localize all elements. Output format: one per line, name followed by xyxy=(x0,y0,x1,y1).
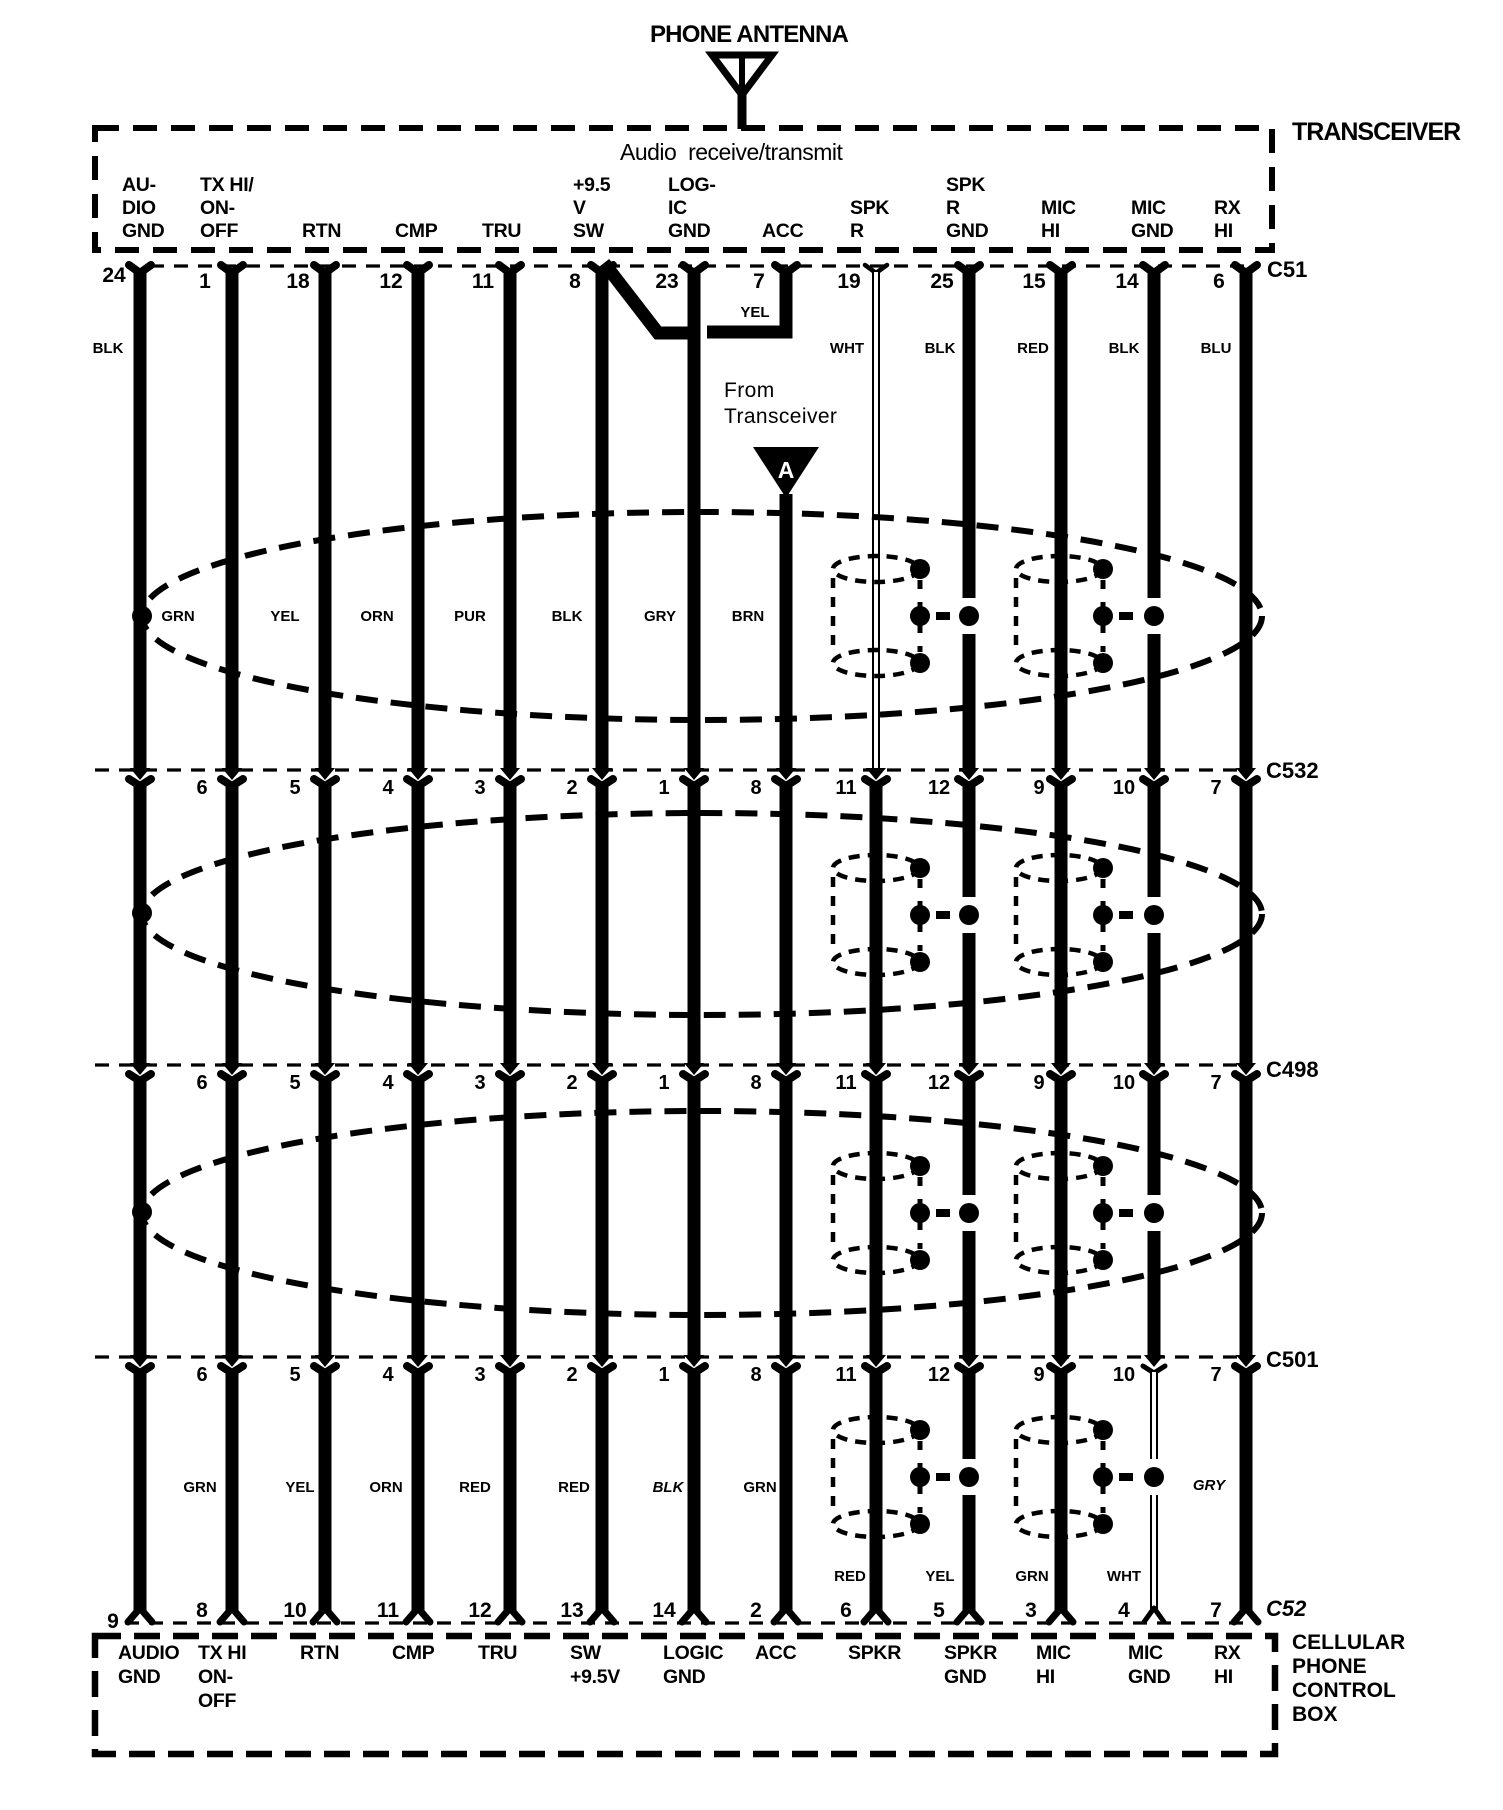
svg-text:WHT: WHT xyxy=(1107,1568,1141,1585)
svg-text:SPKR: SPKR xyxy=(944,1642,997,1664)
svg-text:From: From xyxy=(724,379,775,402)
svg-text:BLK: BLK xyxy=(93,340,124,357)
svg-text:CONTROL: CONTROL xyxy=(1292,1679,1396,1702)
svg-text:10: 10 xyxy=(1113,777,1135,799)
svg-text:1: 1 xyxy=(658,1072,669,1094)
svg-text:7: 7 xyxy=(1210,777,1221,799)
svg-text:7: 7 xyxy=(1210,1072,1221,1094)
svg-text:12: 12 xyxy=(928,777,950,799)
svg-text:10: 10 xyxy=(1113,1072,1135,1094)
svg-text:GRN: GRN xyxy=(1015,1568,1048,1585)
svg-text:4: 4 xyxy=(382,1364,394,1386)
svg-text:5: 5 xyxy=(289,1072,300,1094)
svg-text:11: 11 xyxy=(835,777,856,799)
svg-text:7: 7 xyxy=(753,270,765,293)
svg-text:14: 14 xyxy=(652,1599,676,1622)
svg-text:9: 9 xyxy=(1033,1072,1044,1094)
svg-text:ACC: ACC xyxy=(762,220,804,242)
svg-text:14: 14 xyxy=(1115,270,1139,293)
svg-text:10: 10 xyxy=(283,1599,306,1622)
svg-text:HI: HI xyxy=(1041,220,1060,242)
svg-text:10: 10 xyxy=(1113,1364,1135,1386)
svg-text:SPK: SPK xyxy=(946,174,985,196)
svg-text:7: 7 xyxy=(1210,1364,1221,1386)
svg-text:2: 2 xyxy=(566,1072,577,1094)
svg-text:12: 12 xyxy=(928,1072,950,1094)
svg-text:+9.5V: +9.5V xyxy=(570,1666,620,1688)
svg-text:2: 2 xyxy=(566,1364,577,1386)
svg-text:GND: GND xyxy=(663,1666,706,1688)
svg-text:GRN: GRN xyxy=(161,608,194,625)
svg-text:MIC: MIC xyxy=(1131,197,1166,219)
svg-text:GND: GND xyxy=(944,1666,987,1688)
svg-text:3: 3 xyxy=(474,1072,485,1094)
svg-text:RTN: RTN xyxy=(300,1642,339,1664)
svg-text:SPKR: SPKR xyxy=(848,1642,901,1664)
svg-text:BLK: BLK xyxy=(552,608,583,625)
svg-text:11: 11 xyxy=(472,270,495,293)
svg-text:R: R xyxy=(946,197,960,219)
svg-text:6: 6 xyxy=(196,1364,207,1386)
svg-text:C532: C532 xyxy=(1266,758,1319,783)
svg-text:SPK: SPK xyxy=(850,197,889,219)
svg-text:BLK: BLK xyxy=(653,1479,685,1496)
svg-text:GND: GND xyxy=(122,220,165,242)
svg-text:SW: SW xyxy=(573,220,605,242)
svg-text:3: 3 xyxy=(474,777,485,799)
svg-text:MIC: MIC xyxy=(1036,1642,1071,1664)
svg-text:LOGIC: LOGIC xyxy=(663,1642,723,1664)
svg-text:1: 1 xyxy=(199,270,211,293)
svg-text:ON-: ON- xyxy=(200,197,235,219)
svg-text:5: 5 xyxy=(289,1364,300,1386)
svg-text:GND: GND xyxy=(668,220,711,242)
svg-text:5: 5 xyxy=(933,1599,945,1622)
svg-text:OFF: OFF xyxy=(198,1690,236,1712)
svg-text:4: 4 xyxy=(382,1072,394,1094)
svg-text:R: R xyxy=(850,220,864,242)
svg-text:A: A xyxy=(778,457,795,483)
svg-text:7: 7 xyxy=(1210,1599,1222,1622)
svg-text:15: 15 xyxy=(1022,270,1046,293)
svg-text:2: 2 xyxy=(566,777,577,799)
svg-text:8: 8 xyxy=(569,270,581,293)
svg-text:TRU: TRU xyxy=(482,220,521,242)
svg-text:GND: GND xyxy=(118,1666,161,1688)
svg-text:13: 13 xyxy=(560,1599,583,1622)
svg-text:2: 2 xyxy=(750,1599,762,1622)
svg-text:RED: RED xyxy=(1017,340,1049,357)
svg-text:BOX: BOX xyxy=(1292,1703,1338,1726)
svg-text:19: 19 xyxy=(837,270,860,293)
svg-text:BLK: BLK xyxy=(925,340,956,357)
svg-text:6: 6 xyxy=(840,1599,852,1622)
svg-text:C51: C51 xyxy=(1267,257,1307,282)
svg-text:BLK: BLK xyxy=(1109,340,1140,357)
svg-text:WHT: WHT xyxy=(830,340,864,357)
svg-text:24: 24 xyxy=(102,264,126,287)
svg-text:GND: GND xyxy=(946,220,989,242)
svg-text:9: 9 xyxy=(1033,1364,1044,1386)
svg-text:YEL: YEL xyxy=(270,608,299,625)
svg-text:HI: HI xyxy=(1214,1666,1233,1688)
svg-text:8: 8 xyxy=(196,1599,208,1622)
svg-text:CELLULAR: CELLULAR xyxy=(1292,1631,1405,1654)
svg-text:1: 1 xyxy=(658,1364,669,1386)
svg-text:18: 18 xyxy=(286,270,310,293)
svg-text:DIO: DIO xyxy=(122,197,156,219)
svg-text:8: 8 xyxy=(750,1072,761,1094)
svg-text:3: 3 xyxy=(474,1364,485,1386)
svg-text:BRN: BRN xyxy=(732,608,765,625)
svg-text:MIC: MIC xyxy=(1041,197,1076,219)
svg-text:SW: SW xyxy=(570,1642,602,1664)
svg-text:1: 1 xyxy=(658,777,669,799)
svg-text:YEL: YEL xyxy=(925,1568,954,1585)
svg-text:AU-: AU- xyxy=(122,174,156,196)
svg-text:GRY: GRY xyxy=(1193,1477,1227,1494)
svg-text:YEL: YEL xyxy=(740,304,769,321)
svg-text:11: 11 xyxy=(835,1072,856,1094)
svg-text:12: 12 xyxy=(379,270,402,293)
svg-text:TRU: TRU xyxy=(478,1642,517,1664)
svg-text:6: 6 xyxy=(196,1072,207,1094)
svg-text:Transceiver: Transceiver xyxy=(724,405,837,428)
svg-text:YEL: YEL xyxy=(285,1479,314,1496)
svg-text:9: 9 xyxy=(107,1610,119,1633)
svg-text:CMP: CMP xyxy=(395,220,438,242)
svg-text:C501: C501 xyxy=(1266,1347,1319,1372)
svg-text:CMP: CMP xyxy=(392,1642,435,1664)
svg-text:6: 6 xyxy=(1213,270,1225,293)
svg-text:9: 9 xyxy=(1033,777,1044,799)
svg-text:TX HI/: TX HI/ xyxy=(200,174,254,196)
svg-text:12: 12 xyxy=(928,1364,950,1386)
svg-text:LOG-: LOG- xyxy=(668,174,716,196)
svg-text:+9.5: +9.5 xyxy=(573,174,611,196)
svg-text:ORN: ORN xyxy=(360,608,393,625)
svg-text:RTN: RTN xyxy=(302,220,341,242)
svg-text:11: 11 xyxy=(835,1364,856,1386)
svg-text:3: 3 xyxy=(1025,1599,1037,1622)
svg-text:PHONE ANTENNA: PHONE ANTENNA xyxy=(650,21,849,48)
svg-text:OFF: OFF xyxy=(200,220,238,242)
svg-text:HI: HI xyxy=(1036,1666,1055,1688)
svg-text:GND: GND xyxy=(1128,1666,1171,1688)
svg-text:RED: RED xyxy=(834,1568,866,1585)
svg-text:11: 11 xyxy=(377,1599,400,1622)
svg-text:RED: RED xyxy=(459,1479,491,1496)
svg-text:AUDIO: AUDIO xyxy=(118,1642,179,1664)
svg-text:Audio receive/transmit: Audio receive/transmit xyxy=(620,139,844,165)
svg-text:C498: C498 xyxy=(1266,1057,1319,1082)
svg-text:6: 6 xyxy=(196,777,207,799)
svg-text:12: 12 xyxy=(468,1599,491,1622)
svg-text:5: 5 xyxy=(289,777,300,799)
svg-text:TRANSCEIVER: TRANSCEIVER xyxy=(1292,118,1461,146)
svg-text:25: 25 xyxy=(930,270,954,293)
svg-text:8: 8 xyxy=(750,777,761,799)
svg-text:GRN: GRN xyxy=(183,1479,216,1496)
svg-text:TX HI: TX HI xyxy=(198,1642,246,1664)
svg-text:4: 4 xyxy=(1118,1599,1130,1622)
svg-text:RED: RED xyxy=(558,1479,590,1496)
svg-text:GRN: GRN xyxy=(743,1479,776,1496)
svg-text:RX: RX xyxy=(1214,1642,1241,1664)
svg-text:BLU: BLU xyxy=(1201,340,1232,357)
svg-text:C52: C52 xyxy=(1266,1596,1307,1621)
svg-text:PUR: PUR xyxy=(454,608,486,625)
svg-text:8: 8 xyxy=(750,1364,761,1386)
svg-text:V: V xyxy=(573,197,586,219)
svg-text:4: 4 xyxy=(382,777,394,799)
svg-text:MIC: MIC xyxy=(1128,1642,1163,1664)
svg-text:HI: HI xyxy=(1214,220,1233,242)
svg-text:GRY: GRY xyxy=(644,608,676,625)
svg-text:ON-: ON- xyxy=(198,1666,233,1688)
svg-text:RX: RX xyxy=(1214,197,1241,219)
svg-text:23: 23 xyxy=(655,270,678,293)
svg-text:IC: IC xyxy=(668,197,687,219)
svg-text:PHONE: PHONE xyxy=(1292,1655,1367,1678)
svg-text:GND: GND xyxy=(1131,220,1174,242)
svg-text:ORN: ORN xyxy=(369,1479,402,1496)
svg-text:ACC: ACC xyxy=(755,1642,797,1664)
